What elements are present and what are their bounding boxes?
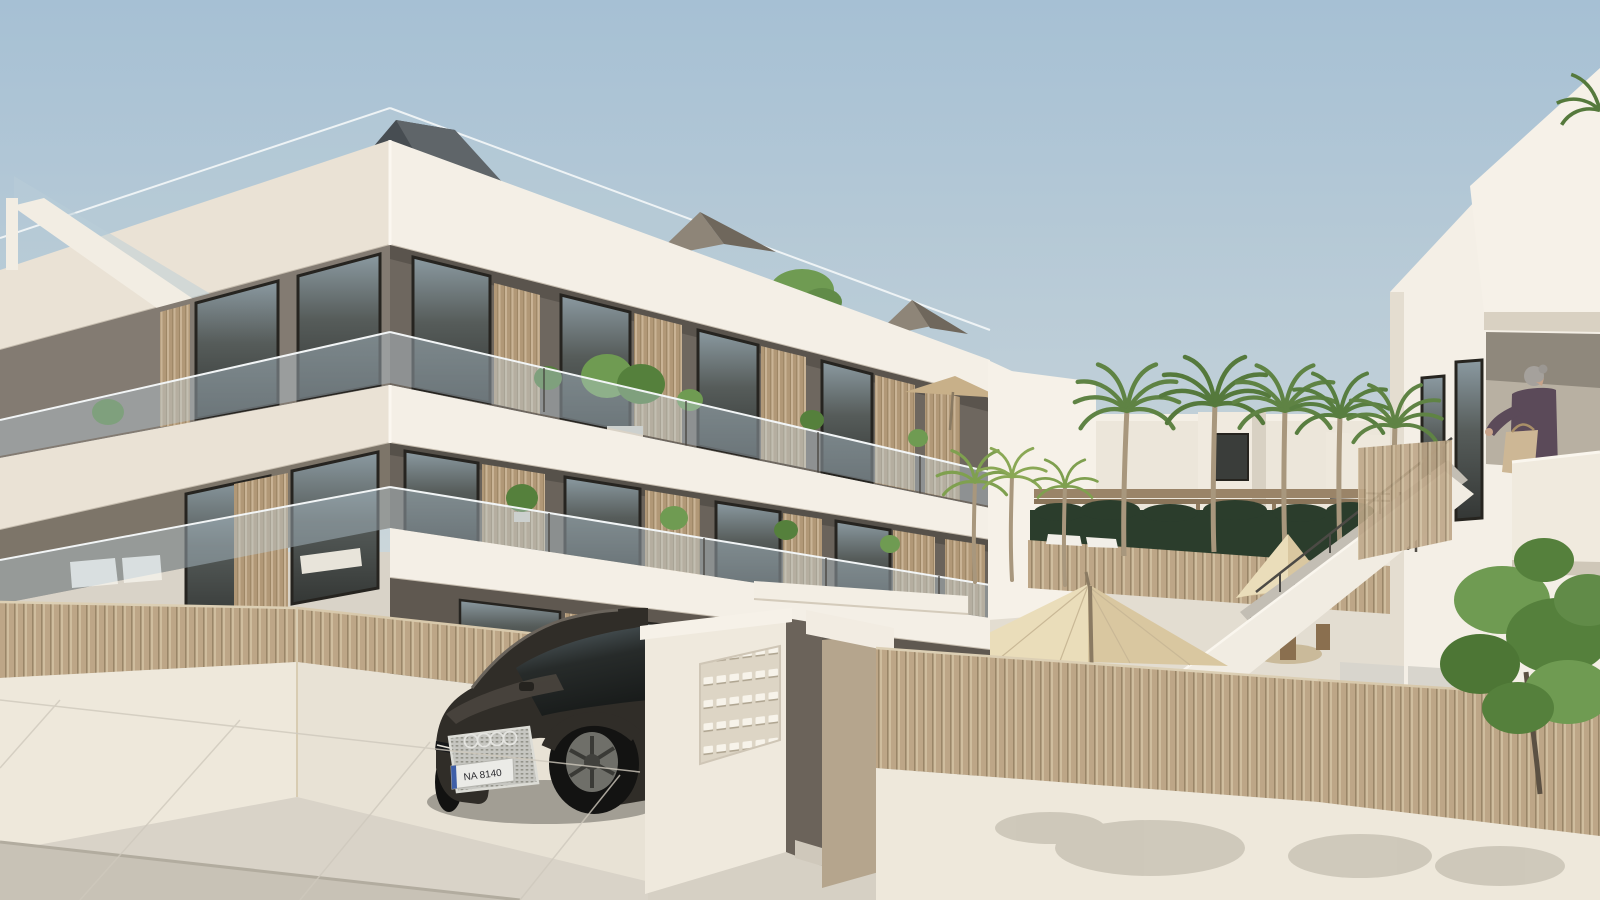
architectural-render: NA 8140 <box>0 0 1600 900</box>
render-viewport: NA 8140 <box>0 0 1600 900</box>
eu-strip <box>451 765 457 789</box>
hand <box>1485 428 1493 436</box>
stair-fence <box>1358 440 1452 560</box>
tower-window <box>1214 434 1248 480</box>
entrance-passage <box>786 618 822 866</box>
side-mirror <box>519 682 534 691</box>
